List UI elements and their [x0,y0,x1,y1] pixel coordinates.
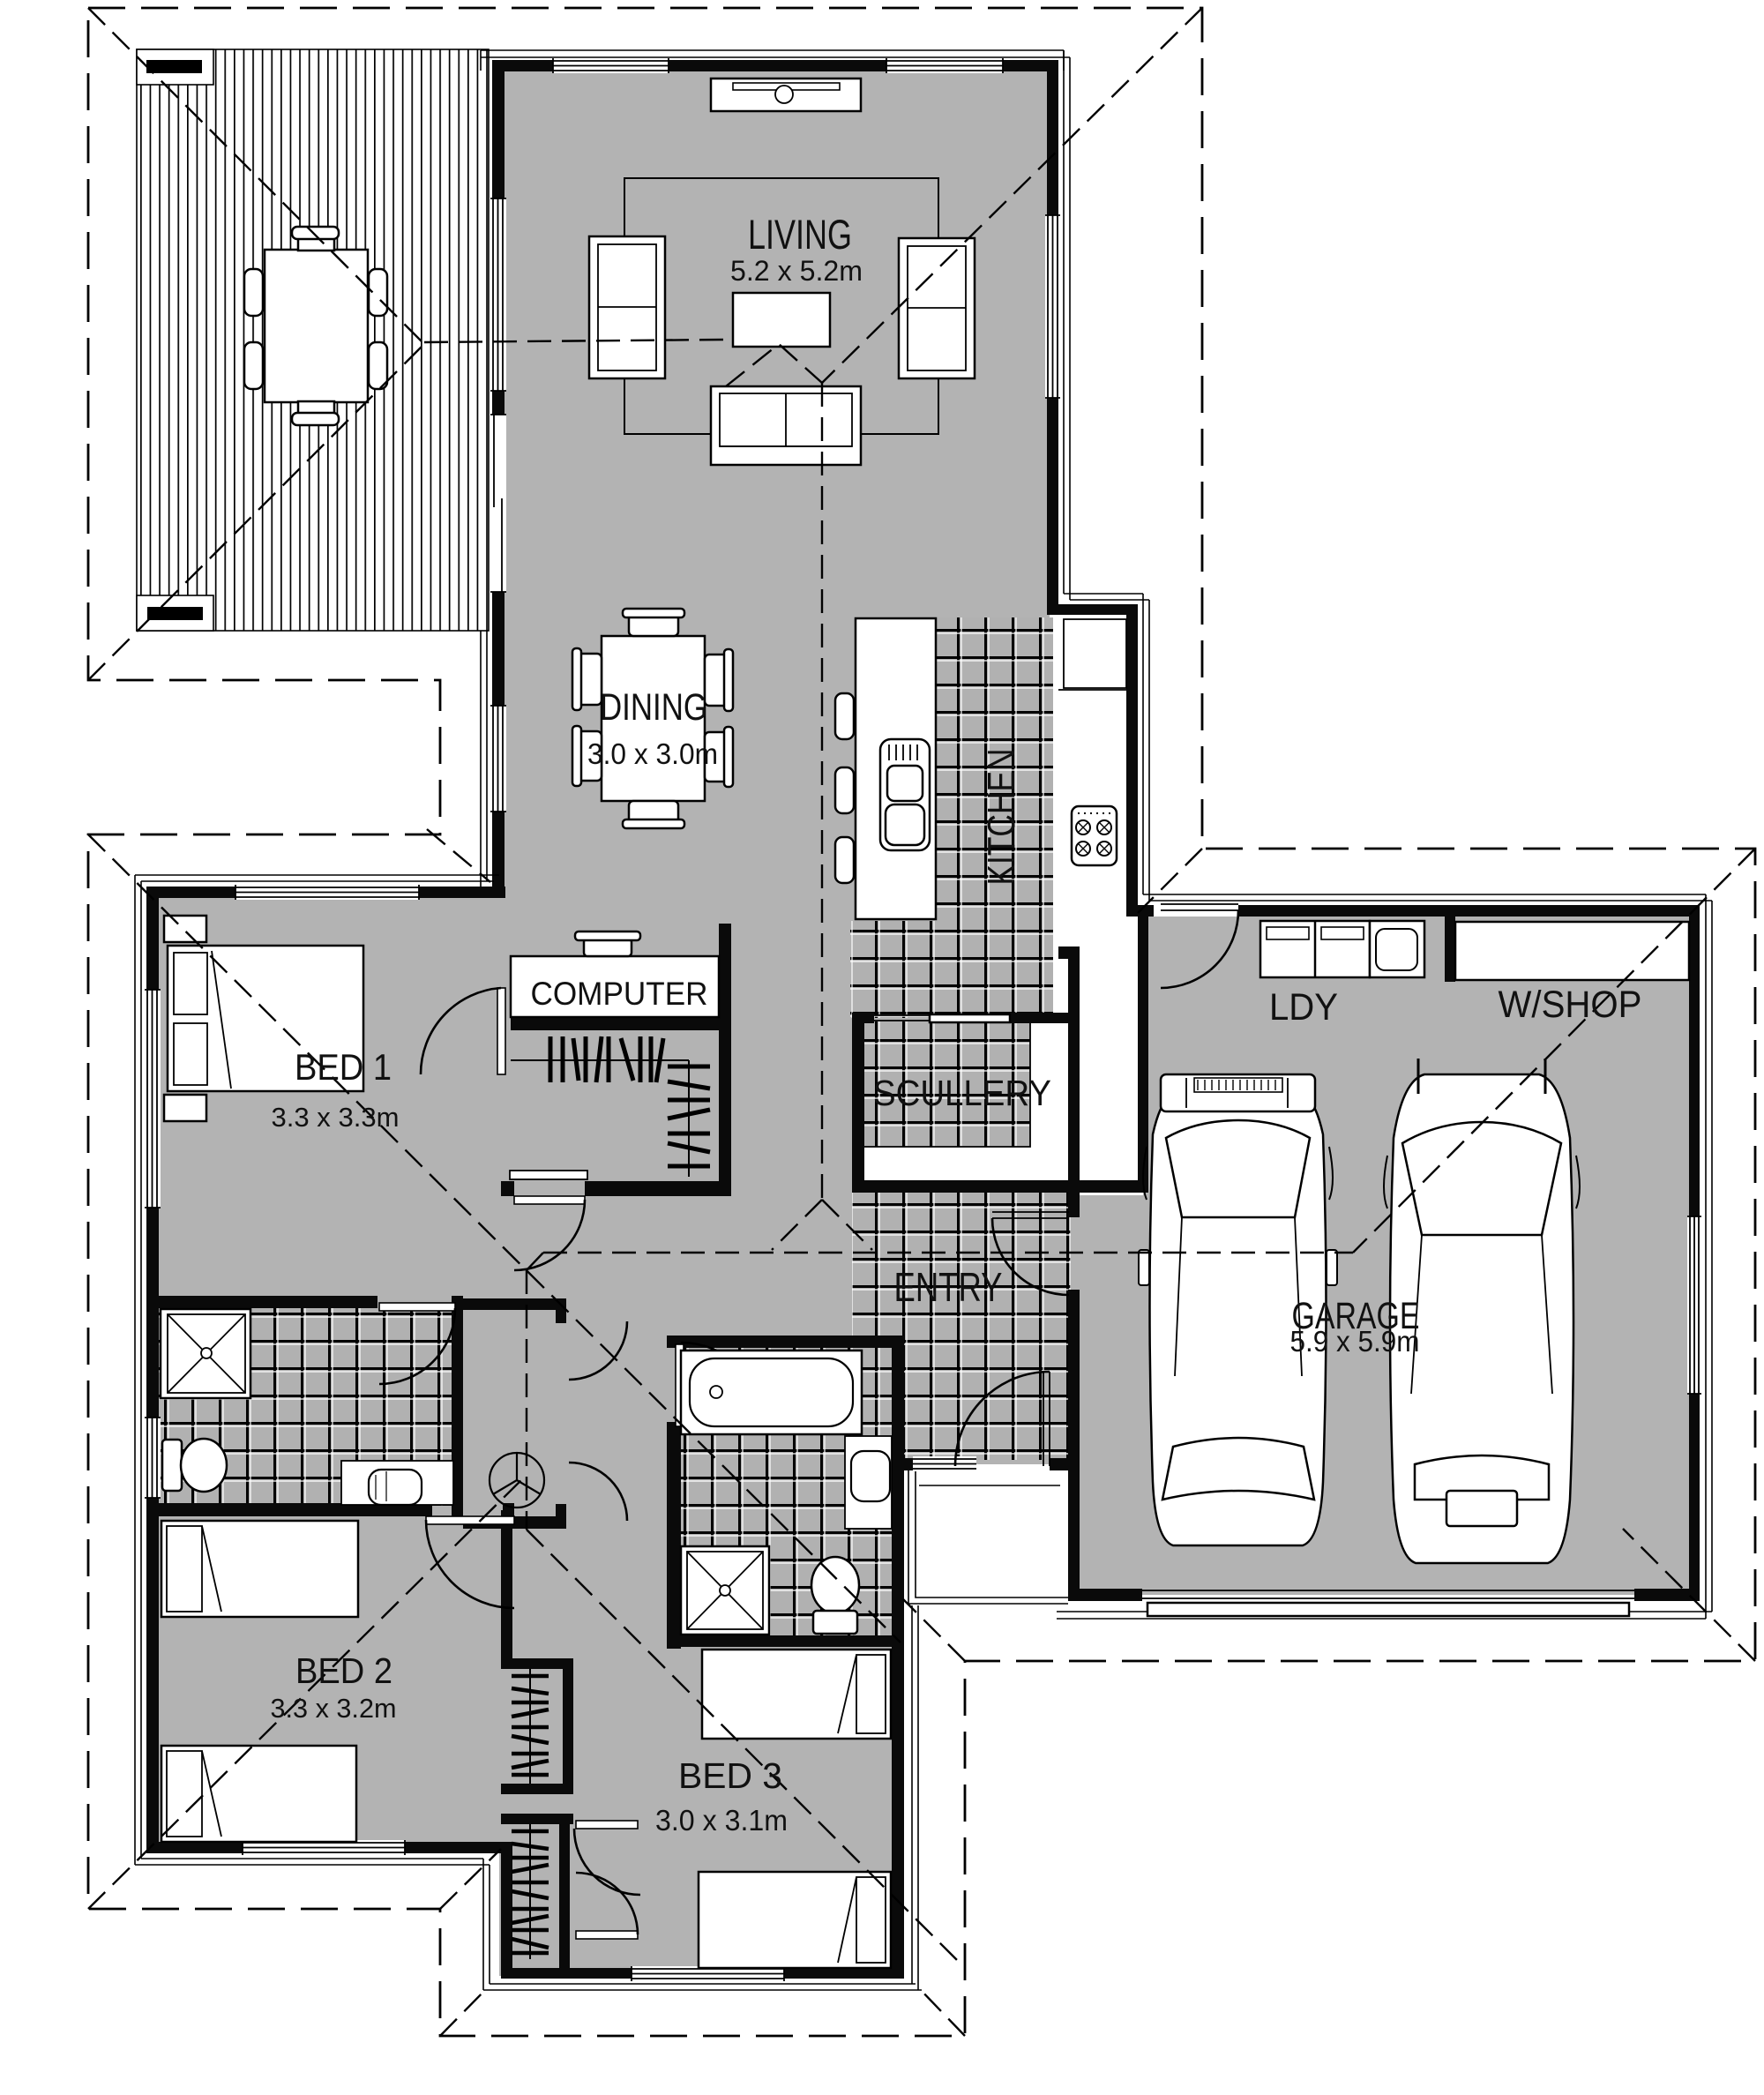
svg-text:DINING: DINING [600,686,707,729]
svg-text:COMPUTER: COMPUTER [531,976,708,1012]
svg-text:3.0 x 3.0m: 3.0 x 3.0m [587,737,718,770]
svg-text:5.2 x 5.2m: 5.2 x 5.2m [730,255,863,287]
svg-text:ENTRY: ENTRY [894,1264,1003,1310]
svg-text:LIVING: LIVING [748,211,852,258]
svg-text:LDY: LDY [1269,986,1338,1029]
svg-text:BED 1: BED 1 [295,1046,392,1088]
svg-text:KITCHEN: KITCHEN [980,749,1023,886]
svg-text:3.3 x 3.3m: 3.3 x 3.3m [272,1102,400,1133]
svg-text:3.0 x 3.1m: 3.0 x 3.1m [655,1804,788,1837]
svg-text:BED 2: BED 2 [295,1650,392,1691]
svg-text:SCULLERY: SCULLERY [873,1073,1051,1113]
svg-text:5.9 x 5.9m: 5.9 x 5.9m [1290,1325,1420,1358]
svg-text:3.3 x 3.2m: 3.3 x 3.2m [271,1693,397,1724]
svg-text:BED 3: BED 3 [678,1755,782,1796]
svg-text:W/SHOP: W/SHOP [1499,984,1642,1026]
